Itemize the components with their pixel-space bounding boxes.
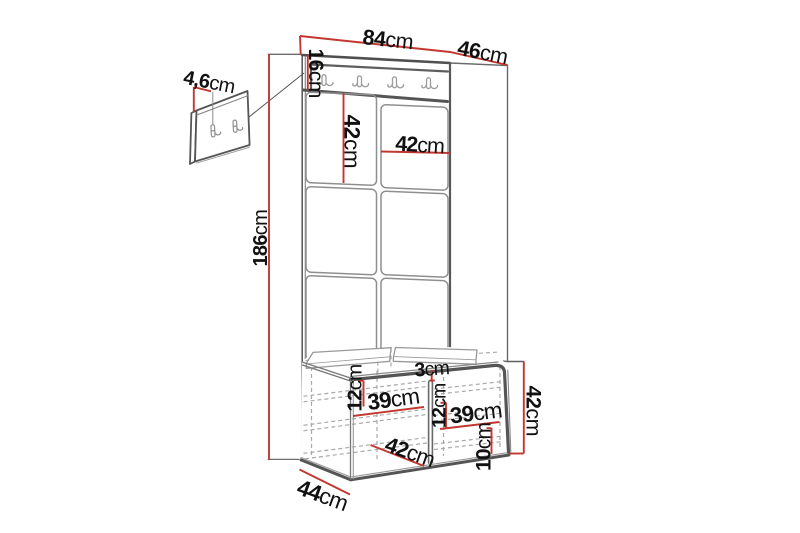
svg-text:42cm: 42cm	[395, 132, 445, 159]
svg-text:42cm: 42cm	[522, 386, 546, 437]
svg-text:3cm: 3cm	[414, 357, 450, 381]
svg-text:16cm: 16cm	[304, 49, 327, 98]
svg-text:186cm: 186cm	[250, 210, 272, 267]
svg-text:10cm: 10cm	[473, 423, 496, 471]
svg-text:12cm: 12cm	[429, 384, 451, 429]
svg-text:12cm: 12cm	[344, 365, 367, 412]
svg-text:42cm: 42cm	[340, 115, 365, 169]
